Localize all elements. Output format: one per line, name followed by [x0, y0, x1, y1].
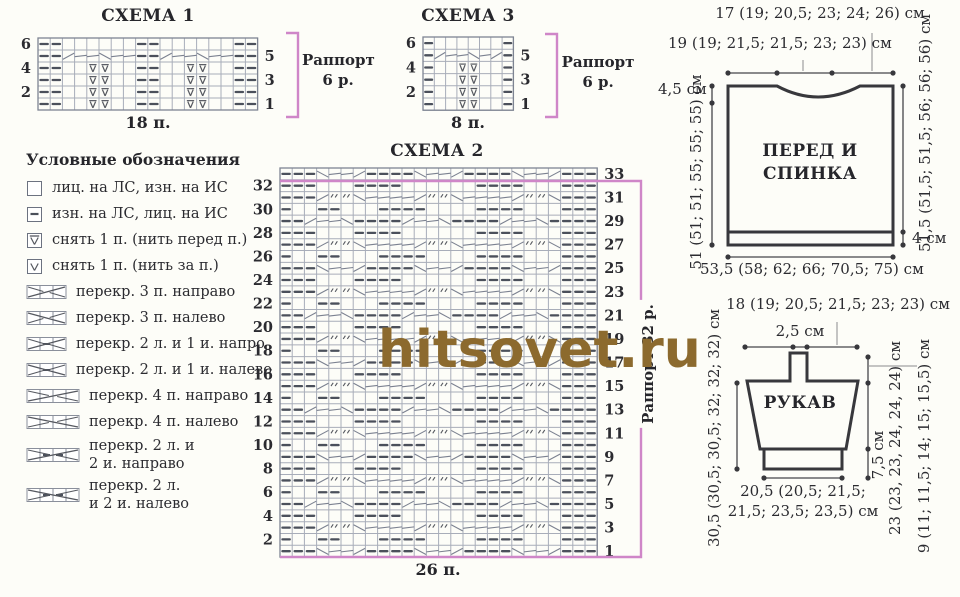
svg-text:4: 4 [21, 60, 31, 77]
knitting-pattern-page: 6425316425313230282624222018161412108642… [0, 0, 960, 597]
svg-text:3: 3 [604, 520, 614, 537]
sleeve-cuff-outline [764, 449, 842, 469]
cable2k2p-left-icon [26, 486, 80, 504]
chart1-grid: 642531 [21, 36, 275, 113]
legend-item: перекр. 2 л. и2 и. направо [26, 437, 278, 473]
svg-text:6: 6 [406, 35, 416, 52]
legend-item-label: перекр. 4 п. налево [89, 413, 238, 431]
svg-text:3: 3 [520, 72, 530, 89]
chart3-title: СХЕМА 3 [378, 6, 558, 26]
front-back-title: ПЕРЕД И СПИНКА [740, 140, 880, 186]
legend-item: снять 1 п. (нить за п.) [26, 255, 278, 277]
legend-item: перекр. 4 п. направо [26, 385, 278, 407]
svg-text:1: 1 [265, 96, 275, 113]
cable2k1p-left-icon [26, 361, 67, 379]
svg-text:3: 3 [265, 72, 275, 89]
legend-title: Условные обозначения [26, 150, 278, 169]
slip-back-icon [26, 258, 43, 275]
cable3-left-icon [26, 309, 67, 327]
cable3-right-icon [26, 283, 67, 301]
legend-item-label: лиц. на ЛС, изн. на ИС [52, 179, 228, 197]
svg-text:7: 7 [604, 472, 614, 489]
chart3-grid: 642531 [406, 35, 531, 113]
legend-item-label: перекр. 2 л. и2 и. направо [89, 437, 195, 473]
legend-item: перекр. 2 л. и 1 и. налево [26, 359, 278, 381]
legend-item-label: снять 1 п. (нить за п.) [52, 257, 219, 275]
front-back-right-height-label: 51,5 (51,5; 51,5; 56; 56; 56) см [916, 14, 934, 252]
svg-text:5: 5 [520, 47, 530, 64]
chart1-title: СХЕМА 1 [58, 6, 238, 26]
legend-item: перекр. 2 л.и 2 и. налево [26, 477, 278, 513]
knit-icon [26, 180, 43, 197]
svg-text:5: 5 [604, 496, 614, 513]
sleeve-top-width-label: 18 (19; 20,5; 21,5; 23; 23) см [718, 295, 958, 313]
front-back-left-height-label: 51 (51; 51; 55; 55; 55) см [687, 74, 705, 269]
chart1-stitch-count: 18 п. [98, 113, 198, 132]
sleeve-tab-width-label: 2,5 см [760, 322, 840, 340]
legend-item: лиц. на ЛС, изн. на ИС [26, 177, 278, 199]
svg-text:23: 23 [604, 284, 624, 301]
rapport-bracket-chart3 [545, 34, 557, 117]
legend-item-label: перекр. 4 п. направо [89, 387, 248, 405]
legend-item-label: перекр. 2 л.и 2 и. налево [89, 477, 189, 513]
sleeve-bottom-width-label-line1: 20,5 (20,5; 21,5; [713, 482, 893, 500]
svg-text:9: 9 [604, 449, 614, 466]
svg-text:4: 4 [406, 60, 416, 77]
cable2k2p-right-icon [26, 446, 80, 464]
legend-item: перекр. 3 п. налево [26, 307, 278, 329]
legend-item-label: снять 1 п. (нить перед п.) [52, 231, 247, 249]
legend-item-label: изн. на ЛС, лиц. на ИС [52, 205, 228, 223]
svg-text:31: 31 [604, 189, 624, 206]
chart3-stitch-count: 8 п. [418, 113, 518, 132]
legend-item: перекр. 2 л. и 1 и. напро [26, 333, 278, 355]
cable2k1p-right-icon [26, 335, 67, 353]
svg-text:5: 5 [265, 48, 275, 65]
svg-text:2: 2 [406, 84, 416, 101]
chart2-stitch-count: 26 п. [388, 560, 488, 579]
svg-text:13: 13 [604, 402, 624, 419]
svg-text:27: 27 [604, 237, 624, 254]
svg-text:2: 2 [21, 84, 31, 101]
legend-item-label: перекр. 3 п. направо [76, 283, 235, 301]
front-back-band-label: 4 см [912, 229, 946, 247]
svg-text:6: 6 [21, 36, 31, 53]
svg-text:2: 2 [263, 531, 273, 548]
legend-item-label: перекр. 2 л. и 1 и. напро [76, 335, 265, 353]
front-back-neck-width-label: 19 (19; 21,5; 21,5; 23; 23) см [668, 34, 883, 52]
svg-text:29: 29 [604, 213, 624, 230]
sleeve-cuff-height-label: 7,5 см [869, 431, 887, 480]
slip-front-icon [26, 232, 43, 249]
sleeve-outer-height-label: 9 (11; 11,5; 14; 15; 15,5) см [915, 339, 933, 553]
cable4-right-icon [26, 387, 80, 405]
legend-item: перекр. 3 п. направо [26, 281, 278, 303]
rapport-brackets [280, 33, 641, 557]
legend-item-label: перекр. 3 п. налево [76, 309, 225, 327]
chart2-title: СХЕМА 2 [347, 141, 527, 161]
symbol-legend: Условные обозначения лиц. на ЛС, изн. на… [26, 150, 278, 518]
legend-item: изн. на ЛС, лиц. на ИС [26, 203, 278, 225]
chart3-rapport-label: Раппорт 6 р. [561, 52, 635, 93]
legend-item: перекр. 4 п. налево [26, 411, 278, 433]
chart1-rapport-label: Раппорт 6 р. [302, 50, 374, 91]
legend-items: лиц. на ЛС, изн. на ИСизн. на ЛС, лиц. н… [26, 177, 278, 514]
front-back-top-width-label: 17 (19; 20,5; 23; 24; 26) см [700, 4, 940, 22]
legend-item-label: перекр. 2 л. и 1 и. налево [76, 361, 272, 379]
cable4-left-icon [26, 413, 80, 431]
svg-text:11: 11 [604, 425, 624, 442]
rapport-bracket-chart1 [286, 33, 298, 117]
svg-text:15: 15 [604, 378, 624, 395]
svg-text:1: 1 [520, 96, 530, 113]
purl-icon [26, 206, 43, 223]
watermark: hitsovet.ru [378, 320, 701, 380]
legend-item: снять 1 п. (нить перед п.) [26, 229, 278, 251]
svg-text:25: 25 [604, 260, 624, 277]
sleeve-title: РУКАВ [740, 392, 860, 415]
front-back-bottom-width-label: 53,5 (58; 62; 66; 70,5; 75) см [700, 260, 920, 278]
sleeve-bottom-width-label-line2: 21,5; 23,5; 23,5) см [703, 502, 903, 520]
